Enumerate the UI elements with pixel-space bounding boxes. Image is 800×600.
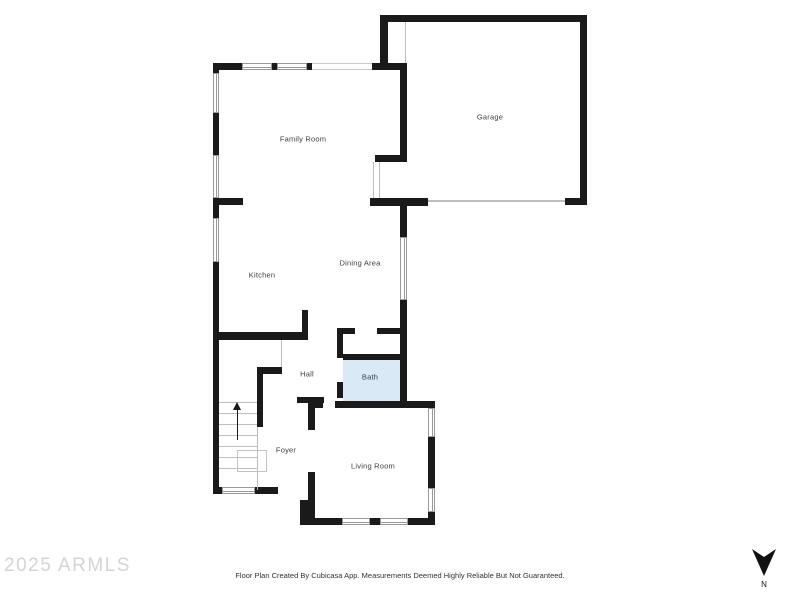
window: [213, 218, 219, 262]
wall: [400, 205, 407, 237]
window: [213, 155, 219, 198]
wall: [213, 113, 219, 155]
wall: [308, 408, 315, 430]
door-line: [379, 162, 380, 198]
stair-landing: [237, 450, 267, 472]
wall: [257, 367, 263, 427]
room-label-kitchen: Kitchen: [249, 271, 275, 280]
wall: [380, 15, 587, 22]
door-line: [281, 340, 282, 367]
window: [222, 487, 255, 494]
wall: [343, 354, 407, 360]
room-label-dining-area: Dining Area: [340, 259, 381, 268]
window: [213, 73, 219, 113]
wall: [213, 332, 308, 340]
sliding-door: [312, 63, 372, 70]
wall: [380, 15, 388, 68]
window: [242, 63, 272, 70]
stair-tread: [219, 446, 257, 447]
room-label-living-room: Living Room: [351, 462, 395, 471]
wall: [580, 15, 587, 205]
wall: [377, 328, 402, 334]
north-arrow-icon: [748, 546, 780, 578]
garage-door-line: [428, 200, 565, 202]
wall: [335, 401, 435, 408]
room-label-hall: Hall: [300, 370, 314, 379]
door-line: [373, 162, 374, 198]
wall: [302, 310, 308, 332]
wall: [308, 401, 323, 408]
floor-plan: Family Room Garage Kitchen Dining Area H…: [0, 0, 800, 600]
stair-tread: [219, 435, 257, 436]
window: [342, 518, 370, 525]
window: [428, 408, 435, 437]
wall: [213, 198, 243, 205]
disclaimer-text: Floor Plan Created By Cubicasa App. Meas…: [0, 571, 800, 580]
wall: [370, 198, 428, 206]
window: [380, 518, 408, 525]
wall: [213, 262, 219, 494]
window: [428, 488, 435, 512]
wall: [337, 382, 343, 398]
room-label-garage: Garage: [477, 113, 503, 122]
wall: [565, 198, 587, 205]
room-label-family-room: Family Room: [280, 135, 326, 144]
wall: [372, 63, 407, 70]
room-label-foyer: Foyer: [276, 446, 296, 455]
garage-nook-line: [405, 22, 406, 63]
compass: N: [748, 546, 780, 590]
wall: [400, 70, 407, 157]
room-label-bath: Bath: [362, 373, 378, 382]
stair-arrow-stem: [237, 409, 238, 440]
window: [400, 237, 407, 300]
window: [277, 63, 307, 70]
stair-tread: [219, 413, 257, 414]
wall: [375, 155, 407, 162]
wall: [213, 63, 219, 73]
north-label: N: [748, 580, 780, 589]
stair-tread: [219, 424, 257, 425]
